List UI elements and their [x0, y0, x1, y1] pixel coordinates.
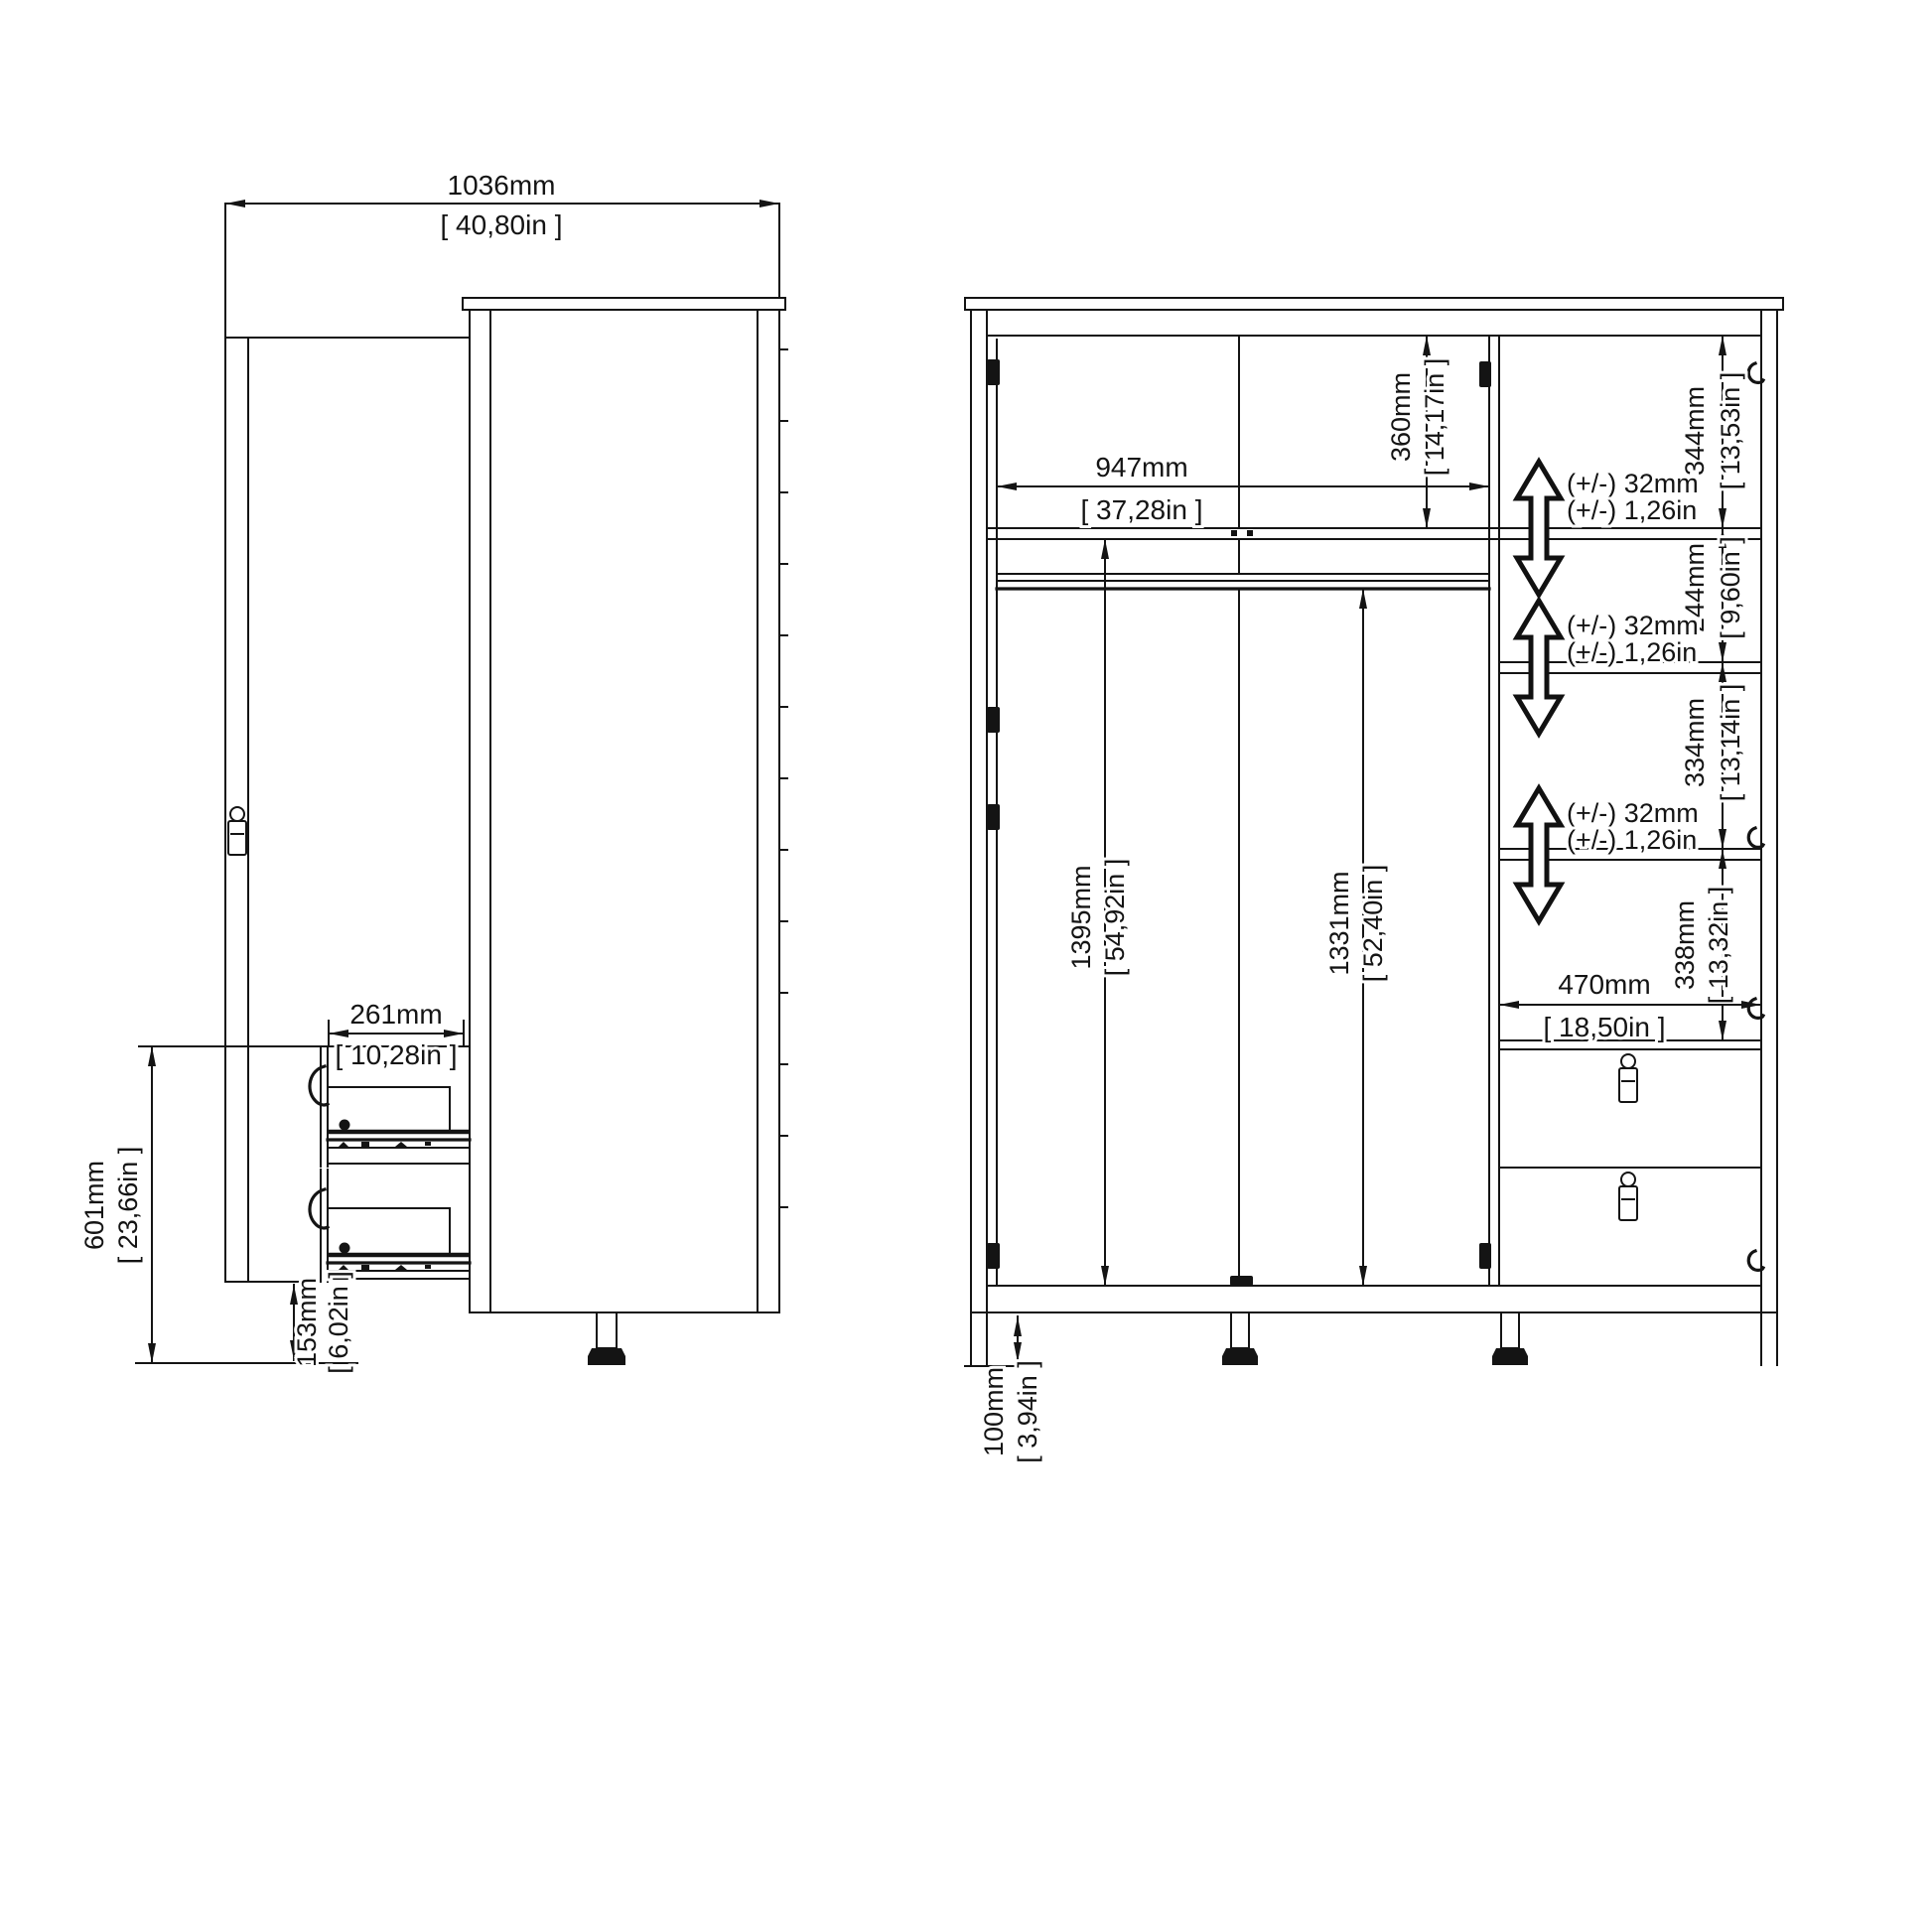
dim-label-261mm: 261mm [349, 999, 442, 1030]
side-drawer-2 [310, 1170, 470, 1282]
adjust-note-mm: (+/-) 32mm [1567, 798, 1699, 828]
dim-label-947in: [ 37,28in ] [1081, 494, 1203, 525]
dim-label-153in: [ 6,02in ] [324, 1271, 353, 1374]
hinge-icon [987, 359, 1000, 1269]
dim-front-shelf-chain: 344mm [ 13,53in ] 244mm [ 9,60in ] 334mm… [1670, 336, 1745, 1040]
adjust-note-in: (+/-) 1,26in [1567, 495, 1697, 525]
side-leg [588, 1312, 625, 1365]
dim-front-hanging-left: 1395mm [ 54,92in ] [1066, 539, 1130, 1286]
dim-label-344mm: 344mm [1680, 386, 1710, 476]
dim-label-344in: [ 13,53in ] [1716, 372, 1745, 490]
dim-label-360in: [ 14,17in ] [1420, 358, 1449, 477]
dim-label-153mm: 153mm [292, 1278, 322, 1367]
dim-label-244in: [ 9,60in ] [1716, 536, 1745, 639]
drawer-handle-icon [1619, 1173, 1637, 1220]
shelf-adjust-annotations: (+/-) 32mm (+/-) 1,26in (+/-) 32mm (+/-)… [1517, 462, 1699, 921]
dim-label-334mm: 334mm [1680, 698, 1710, 787]
side-open-door [225, 204, 470, 1282]
dim-front-hanging-mid: 1331mm [ 52,40in ] [1324, 589, 1388, 1286]
side-drawer-unit [139, 1046, 470, 1282]
dim-front-inner-width: 947mm [ 37,28in ] [997, 452, 1489, 525]
adjust-note-in: (+/-) 1,26in [1567, 825, 1697, 855]
dim-label-470mm: 470mm [1558, 969, 1650, 1000]
dim-label-1331in: [ 52,40in ] [1358, 865, 1388, 983]
back-edge-ticks [779, 349, 787, 1207]
drawer-hook-handle-icon [310, 1066, 328, 1105]
dim-label-947mm: 947mm [1095, 452, 1187, 483]
front-view: 947mm [ 37,28in ] 360mm [ 14,17in ] 1395… [965, 298, 1783, 1463]
dim-side-overall-width: 1036mm [ 40,80in ] [225, 170, 779, 296]
dim-side-plinth-height: 153mm [ 6,02in ] [248, 1271, 353, 1374]
dim-front-top-section: 360mm [ 14,17in ] [1386, 336, 1449, 528]
drawer-hook-handle-icon [310, 1189, 328, 1228]
hanging-rail [997, 574, 1489, 589]
door-handle-icon [228, 807, 246, 855]
wardrobe-dimension-drawing: 1036mm [ 40,80in ] [0, 0, 1932, 1932]
adjust-note-in: (+/-) 1,26in [1567, 637, 1697, 667]
dim-front-leg-height: 100mm [ 3,94in ] [979, 1316, 1042, 1463]
dim-label-601mm: 601mm [79, 1161, 109, 1250]
dim-label-338mm: 338mm [1670, 900, 1700, 990]
side-view: 1036mm [ 40,80in ] [79, 170, 787, 1374]
double-arrow-icon [1517, 601, 1561, 734]
dim-label-261in: [ 10,28in ] [336, 1039, 458, 1070]
dim-label-1331mm: 1331mm [1324, 871, 1354, 975]
dim-label-334in: [ 13,14in ] [1716, 684, 1745, 802]
front-drawers [1499, 1054, 1761, 1220]
adjust-note-mm: (+/-) 32mm [1567, 469, 1699, 498]
drawer-handle-icon [1619, 1054, 1637, 1102]
dim-label-1395mm: 1395mm [1066, 865, 1096, 969]
dim-label-100mm: 100mm [979, 1367, 1009, 1456]
dim-label-470in: [ 18,50in ] [1544, 1012, 1666, 1042]
front-legs [1222, 1312, 1528, 1365]
diagram-page: 1036mm [ 40,80in ] [0, 0, 1932, 1932]
dim-label-100in: [ 3,94in ] [1013, 1360, 1042, 1463]
adjust-note-mm: (+/-) 32mm [1567, 611, 1699, 640]
dim-label-338in: [ 13,32in ] [1704, 887, 1733, 1005]
dim-label-601in: [ 23,66in ] [113, 1147, 143, 1265]
double-arrow-icon [1517, 788, 1561, 921]
dim-side-drawer-depth: 261mm [ 10,28in ] [329, 999, 464, 1070]
dim-label-1395in: [ 54,92in ] [1100, 859, 1130, 977]
dim-label-360mm: 360mm [1386, 372, 1416, 462]
dim-label-1036mm: 1036mm [448, 170, 556, 201]
side-cabinet-body [463, 298, 787, 1365]
dim-label-1036in: [ 40,80in ] [441, 209, 563, 240]
